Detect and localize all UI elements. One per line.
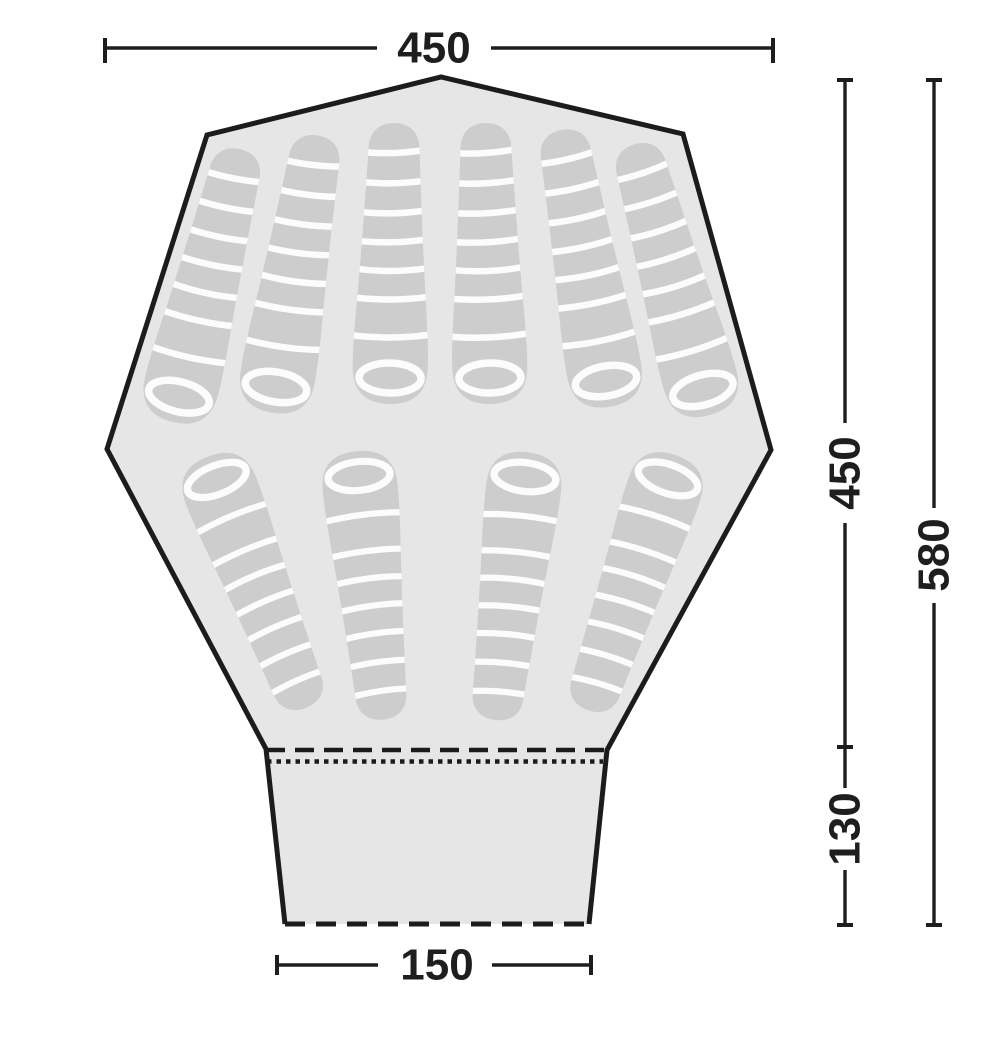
svg-text:580: 580 [910,518,959,591]
svg-text:450: 450 [397,24,470,73]
svg-text:150: 150 [400,941,473,990]
svg-text:450: 450 [821,436,870,509]
svg-text:130: 130 [821,792,870,865]
